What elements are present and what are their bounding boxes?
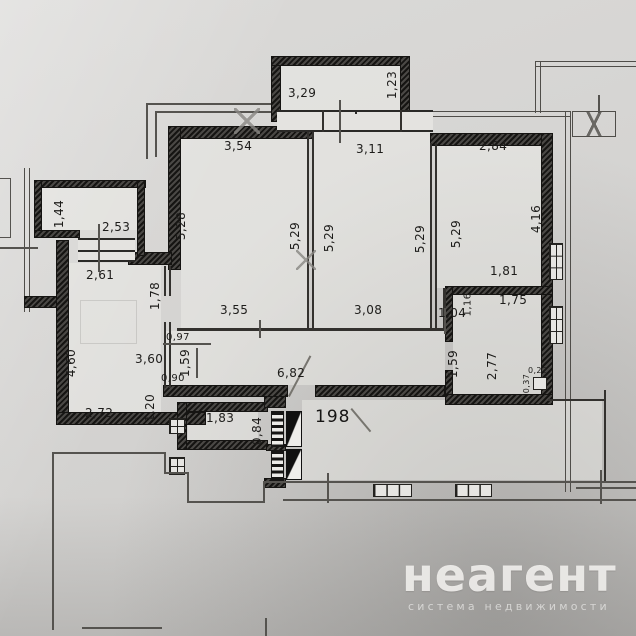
- partition-hall-upper: [164, 266, 171, 296]
- neighbor-top-balcony-edge: [535, 61, 636, 67]
- dim-label: 2,53: [102, 220, 130, 234]
- watermark-tagline: система недвижимости: [408, 600, 610, 613]
- dim-label: 6,82: [277, 366, 305, 380]
- niche-line: [155, 111, 157, 157]
- wall-entry-stub-top: [264, 396, 286, 408]
- dim-label: 1,81: [490, 264, 518, 278]
- wall-left-balcony-bottom: [34, 230, 80, 238]
- neighbor-left-box: [0, 178, 11, 238]
- dim-label: 5,28: [174, 212, 188, 240]
- door-leaf-2: [286, 449, 302, 480]
- dim-label: 2,77: [485, 352, 499, 380]
- window-top-balcony: [277, 110, 433, 132]
- watermark-brand: неагент: [402, 548, 617, 602]
- dim-tick: [259, 320, 261, 338]
- window-kitchen: [78, 238, 135, 262]
- building-wall-bottom-top: [263, 481, 636, 483]
- dim-label: 2,84: [479, 139, 507, 153]
- wall-top-balcony-top: [271, 56, 410, 66]
- wall-corridor-bottom-b: [315, 385, 445, 397]
- dim-label: 1,59: [446, 350, 460, 378]
- dim-label: 5,29: [322, 224, 336, 252]
- dim-label: 2,72: [85, 406, 113, 420]
- floor-plan-photo: 3,29 1,23 3,54 3,11 2,84 5,28 5,29 5,29 …: [0, 0, 636, 636]
- dim-label: 3,08: [354, 303, 382, 317]
- electrical-panel-1: [169, 418, 185, 434]
- lower-partial-tick: [265, 618, 267, 636]
- dim-tick: [163, 343, 211, 345]
- dim-label: 4,16: [529, 205, 543, 233]
- dim-label: 5,29: [288, 222, 302, 250]
- window-corridor-1: [373, 484, 412, 497]
- lobby-top-line: [548, 399, 606, 401]
- neighbor-left-wall: [24, 168, 30, 312]
- dim-label: 2,61: [86, 268, 114, 282]
- stair-outline: [187, 501, 265, 503]
- wall-rooms-bottom: [177, 328, 445, 331]
- neighbor-window-hatch: [572, 111, 616, 137]
- window-corridor-2: [455, 484, 492, 497]
- wall-kitchen-left: [56, 240, 69, 425]
- dim-label: 4,60: [64, 349, 78, 377]
- dim-label: 0,37: [522, 374, 531, 393]
- dim-label: 1,23: [385, 71, 399, 99]
- dim-label: 3,11: [356, 142, 384, 156]
- partition-room2-room3: [430, 143, 437, 330]
- building-wall-bottom-bottom: [283, 499, 636, 501]
- dim-label: 1,20: [143, 394, 157, 422]
- dim-label: 3,54: [224, 139, 252, 153]
- dim-label: 0,90: [161, 373, 185, 384]
- dim-label: 0,22: [528, 366, 547, 375]
- room-3-floor: [437, 146, 541, 288]
- partition-room1-room2: [307, 128, 314, 330]
- pencil-sketch: [80, 300, 137, 344]
- stair-outline: [187, 472, 189, 503]
- building-wall-left-end: [263, 481, 265, 501]
- pencil-x-mark: [296, 250, 316, 270]
- niche-line: [146, 103, 272, 105]
- vent-shaft-2: [549, 306, 563, 344]
- vent-shaft-1: [549, 243, 563, 280]
- dim-label: 1,78: [148, 282, 162, 310]
- dim-label: 1,75: [499, 293, 527, 307]
- wall-room1-left: [168, 126, 181, 270]
- wall-left-balcony-top: [34, 180, 146, 188]
- wall-top-balcony-right: [400, 56, 410, 114]
- dim-label: 1,44: [52, 200, 66, 228]
- dim-tick: [327, 473, 329, 503]
- wall-left-neighbor-stub: [24, 296, 58, 308]
- neighbor-top-balcony-side: [535, 61, 541, 113]
- dim-label: 3,55: [220, 303, 248, 317]
- wall-bathroom-bottom: [445, 394, 553, 405]
- stair-outline: [52, 452, 54, 630]
- wall-left-balcony-right: [137, 180, 145, 256]
- pencil-x-mark: [234, 108, 260, 134]
- door-leaf-1: [286, 411, 302, 447]
- dim-tick: [339, 100, 341, 143]
- dim-label: 5,29: [413, 225, 427, 253]
- apartment-number: 198: [315, 407, 350, 427]
- dim-label: 0,84: [250, 417, 264, 445]
- window-divider: [400, 110, 402, 132]
- niche-line: [146, 103, 148, 159]
- dim-label: 3,60: [135, 352, 163, 366]
- neighbor-right-bottom: [576, 487, 636, 489]
- entrance-door-panel-1: [271, 411, 284, 447]
- dim-tick: [196, 348, 198, 378]
- lower-partial-line: [82, 627, 162, 629]
- entrance-door-panel-2: [271, 450, 284, 481]
- lobby-right-line: [604, 390, 606, 482]
- dim-tick: [98, 224, 100, 272]
- neighbor-left-line: [0, 247, 38, 249]
- dim-label: 1,83: [206, 411, 234, 425]
- dim-tick: [598, 95, 600, 113]
- bathroom-niche-box: [533, 377, 547, 390]
- dim-label: 0,97: [166, 332, 190, 343]
- stair-outline: [164, 472, 188, 474]
- stair-outline: [52, 452, 166, 454]
- dim-label: 5,29: [449, 220, 463, 248]
- dim-label: 1,16: [462, 293, 473, 317]
- stair-outline: [164, 452, 166, 474]
- dim-label: 3,29: [288, 86, 316, 100]
- outer-wall-right: [565, 111, 571, 492]
- dim-tick: [600, 470, 602, 504]
- window-divider: [322, 110, 324, 132]
